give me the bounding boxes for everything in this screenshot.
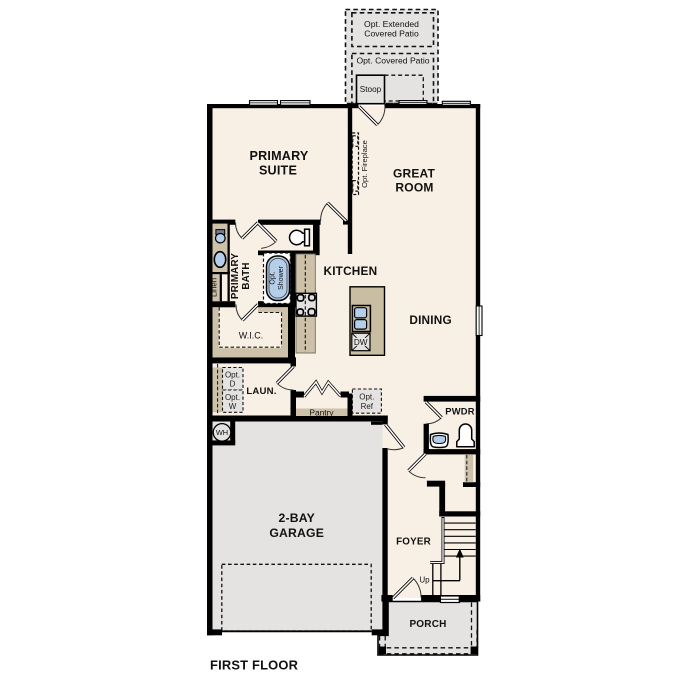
svg-text:Opt.: Opt. [225,393,240,402]
svg-text:Shower: Shower [278,265,285,289]
svg-text:Opt. Extended: Opt. Extended [364,19,419,29]
svg-text:DINING: DINING [409,313,452,327]
svg-text:ROOM: ROOM [395,180,433,194]
svg-text:KITCHEN: KITCHEN [323,264,377,278]
svg-text:PWDR: PWDR [445,405,474,416]
svg-text:W.I.C.: W.I.C. [239,331,264,341]
svg-text:BATH: BATH [241,262,252,289]
svg-text:Stoop: Stoop [360,85,382,94]
svg-text:W: W [229,402,237,411]
svg-text:LAUN.: LAUN. [246,386,276,397]
svg-text:WH: WH [216,428,228,437]
svg-text:Opt. Fireplace: Opt. Fireplace [360,140,369,188]
svg-text:GREAT: GREAT [393,166,436,180]
svg-text:Linen: Linen [210,278,219,297]
svg-text:DW: DW [354,338,368,347]
svg-text:FOYER: FOYER [396,536,431,547]
svg-text:FIRST FLOOR: FIRST FLOOR [210,657,299,672]
svg-text:Pantry: Pantry [309,407,334,417]
svg-text:Covered Patio: Covered Patio [364,29,419,39]
svg-text:Opt.: Opt. [359,393,374,402]
svg-text:D: D [230,380,236,389]
svg-text:2-BAY: 2-BAY [278,511,314,525]
svg-text:Opt.: Opt. [270,271,277,284]
svg-text:PRIMARY: PRIMARY [249,149,308,163]
svg-text:SUITE: SUITE [259,164,297,178]
svg-text:Opt.: Opt. [225,371,240,380]
svg-text:GARAGE: GARAGE [269,526,324,540]
svg-text:PRIMARY: PRIMARY [230,253,241,299]
svg-text:Ref: Ref [361,402,374,411]
svg-text:Opt. Covered Patio: Opt. Covered Patio [356,56,429,66]
svg-text:PORCH: PORCH [409,619,446,630]
svg-text:Up: Up [419,576,430,585]
